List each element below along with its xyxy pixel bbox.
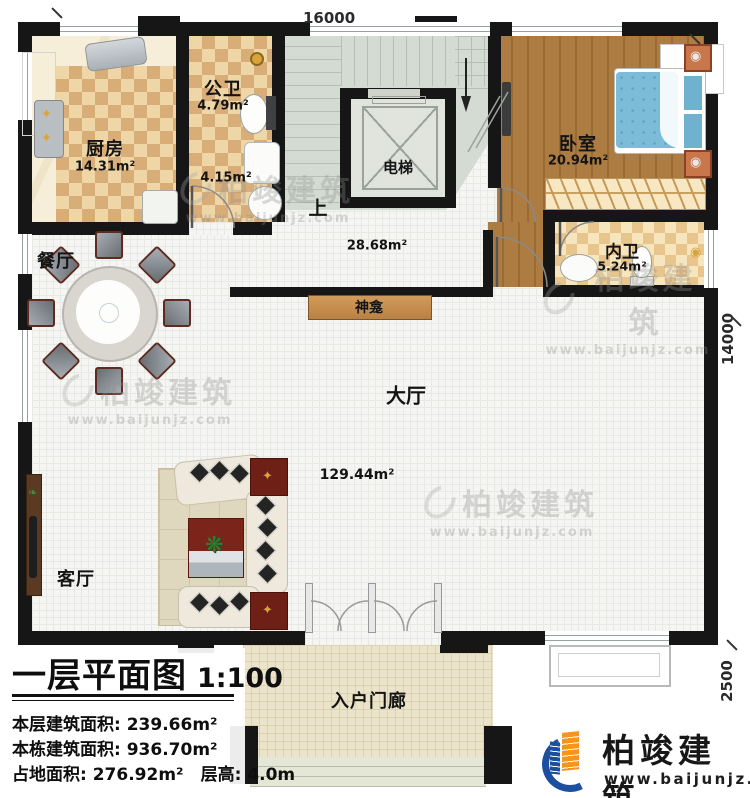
- drawing-scale: 1:100: [197, 663, 283, 694]
- label-small-bath-area: 4.15m²: [200, 171, 251, 186]
- title-underline-thin: [12, 700, 234, 701]
- label-ensuite-area: 5.24m²: [597, 259, 646, 274]
- door-post: [434, 583, 442, 633]
- bath-door-opening: [189, 222, 233, 235]
- floor-plan-canvas: ✦ ✦ ◉ ◉ ◉ ✦ ✦ ❋: [0, 0, 750, 798]
- wall-bedroom-left: [488, 36, 501, 188]
- bedroom-tv: [502, 82, 511, 136]
- dining-table-center: [99, 303, 119, 323]
- stove-burner: ✦: [41, 108, 52, 121]
- stair-treads-left: [285, 46, 341, 206]
- label-hall: 大厅: [386, 380, 426, 409]
- brand-url: www.baijunjz.com: [604, 770, 750, 788]
- elevator-vent: [372, 96, 426, 104]
- label-kitchen: 厨房: [86, 135, 124, 161]
- dimension-tick: [726, 639, 737, 650]
- label-public-bath-area: 4.79m²: [197, 99, 248, 114]
- kitchen-fridge: [142, 190, 178, 224]
- window-dining-left-2: [18, 330, 32, 422]
- label-dining: 餐厅: [37, 247, 75, 273]
- window-bay-bottom: [545, 631, 669, 645]
- label-kitchen-area: 14.31m²: [75, 160, 135, 175]
- label-stairs-up: 上: [308, 194, 327, 221]
- stove-burner: ✦: [41, 132, 52, 145]
- porch-column-right: [484, 726, 512, 784]
- coffee-table-plant: ❋: [205, 535, 223, 557]
- dining-chair: [95, 231, 123, 259]
- title-block: 一层平面图1:100 本层建筑面积: 239.66m² 本栋建筑面积: 936.…: [10, 648, 245, 790]
- label-elevator: 电梯: [383, 157, 413, 178]
- cabinet-plant: ❧: [28, 486, 37, 499]
- drawing-title: 一层平面图: [12, 656, 187, 696]
- elevator-wall-right: [445, 88, 456, 208]
- label-porch: 入户门廊: [331, 687, 407, 713]
- dining-chair: [163, 299, 191, 327]
- label-public-bath: 公卫: [204, 75, 242, 101]
- entrance-opening: [305, 631, 441, 645]
- living-tv: [29, 516, 37, 578]
- window-ensuite-right: [704, 230, 718, 288]
- dimension-top: 16000: [303, 9, 355, 27]
- elevator-wall-bottom: [340, 197, 456, 208]
- dimension-tick: [51, 7, 62, 18]
- stat-floor-height: 层高: 4.0m: [201, 765, 296, 785]
- table-ornament: ✦: [262, 470, 273, 483]
- wall-right: [704, 22, 718, 645]
- wall-vestibule-left: [483, 230, 493, 287]
- table-ornament: ✦: [262, 604, 273, 617]
- bay-window-inner: [558, 653, 660, 677]
- wardrobe: [545, 178, 706, 210]
- column-pad: [138, 16, 180, 36]
- label-hall-area: 129.44m²: [320, 467, 395, 483]
- door-post: [305, 583, 313, 633]
- ensuite-sink: [560, 254, 598, 282]
- vestibule-floor: [488, 222, 543, 287]
- wall-sconce: ◉: [690, 246, 701, 259]
- dimension-right-lower: 2500: [718, 660, 736, 702]
- window-kitchen-top: [60, 22, 138, 36]
- label-bedroom: 卧室: [559, 130, 597, 156]
- bed-pillow: [682, 74, 704, 112]
- stat-footprint: 占地面积: 276.92m²: [12, 765, 183, 785]
- window-dining-left-1: [18, 234, 32, 274]
- label-bedroom-area: 20.94m²: [548, 154, 608, 169]
- dining-chair: [27, 299, 55, 327]
- title-underline: [12, 694, 234, 697]
- stat-building-area: 本栋建筑面积: 936.70m²: [12, 735, 217, 760]
- wall-bedroom-bottom: [543, 210, 704, 222]
- brand-logo-icon: [540, 728, 594, 786]
- door-post: [368, 583, 376, 633]
- floor-drain: [250, 52, 264, 66]
- bath-sink-round: [248, 186, 282, 220]
- stat-floor-area: 本层建筑面积: 239.66m²: [12, 710, 217, 735]
- elevator-wall-left: [340, 88, 351, 208]
- lamp: ◉: [690, 156, 701, 169]
- wall-ensuite-left: [543, 210, 555, 297]
- brand-logo: 柏竣建筑 www.baijunjz.com: [540, 724, 745, 792]
- toilet-tank: [266, 96, 276, 130]
- label-stair-hall-area: 28.68m²: [347, 239, 407, 254]
- wall-ensuite-bottom: [543, 285, 704, 297]
- bed-sheet-fold: [660, 72, 680, 148]
- bed-pillow: [682, 112, 704, 150]
- lamp: ◉: [690, 50, 701, 63]
- label-shrine: 神龛: [355, 297, 383, 317]
- label-living: 客厅: [57, 565, 95, 591]
- dining-chair: [95, 367, 123, 395]
- column-pad: [440, 631, 488, 653]
- window-bedroom-top: [512, 22, 622, 36]
